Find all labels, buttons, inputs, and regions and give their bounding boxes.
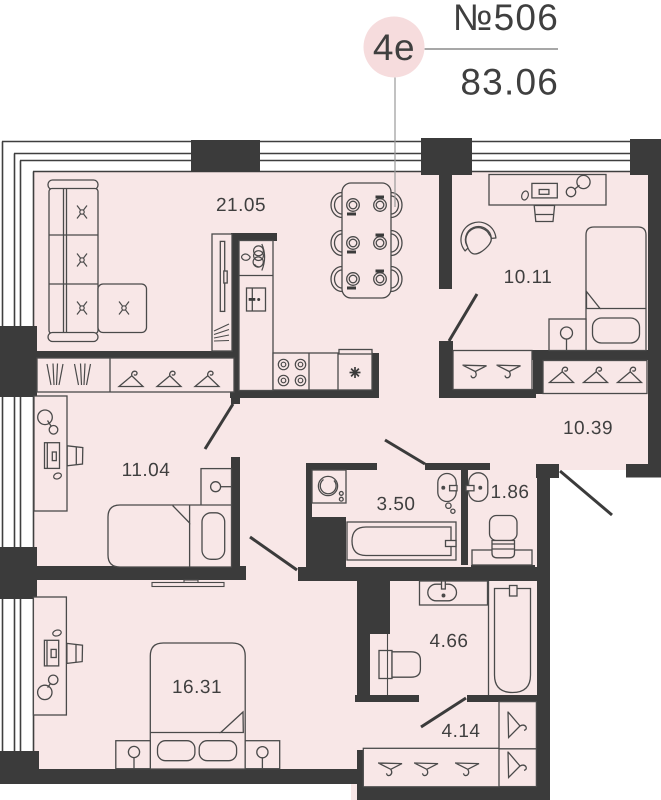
svg-text:10.39: 10.39 bbox=[563, 418, 613, 439]
svg-text:№506: №506 bbox=[453, 0, 559, 38]
svg-text:10.11: 10.11 bbox=[504, 267, 553, 288]
svg-text:4e: 4e bbox=[373, 27, 415, 68]
svg-text:11.04: 11.04 bbox=[122, 460, 171, 481]
svg-text:16.31: 16.31 bbox=[172, 677, 222, 698]
svg-text:4.14: 4.14 bbox=[442, 721, 481, 742]
svg-text:3.50: 3.50 bbox=[377, 494, 416, 515]
svg-text:4.66: 4.66 bbox=[430, 631, 469, 652]
svg-text:1.86: 1.86 bbox=[491, 482, 530, 503]
svg-text:21.05: 21.05 bbox=[216, 195, 266, 216]
svg-text:83.06: 83.06 bbox=[460, 62, 559, 103]
